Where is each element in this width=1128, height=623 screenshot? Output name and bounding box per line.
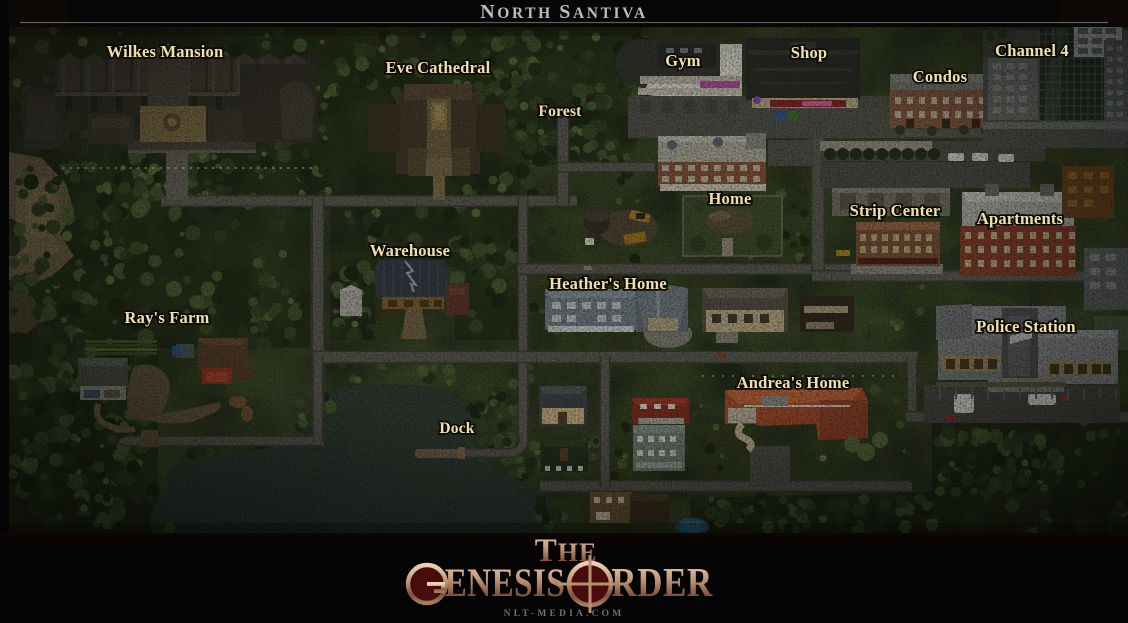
svg-text:Wilkes Mansion: Wilkes Mansion — [107, 42, 224, 61]
svg-text:Gym: Gym — [665, 51, 700, 70]
svg-text:Ray's Farm: Ray's Farm — [125, 308, 210, 327]
svg-text:Home: Home — [709, 189, 752, 208]
svg-text:Apartments: Apartments — [977, 209, 1064, 228]
svg-text:NLT-MEDIA.COM: NLT-MEDIA.COM — [504, 609, 625, 619]
svg-text:Police Station: Police Station — [976, 317, 1076, 336]
svg-text:NORTH SANTIVA: NORTH SANTIVA — [480, 1, 648, 23]
svg-text:Warehouse: Warehouse — [370, 241, 450, 260]
svg-text:RDER: RDER — [611, 560, 713, 605]
svg-text:ENESIS: ENESIS — [445, 560, 566, 605]
svg-text:Channel 4: Channel 4 — [995, 41, 1069, 60]
svg-text:Forest: Forest — [538, 103, 582, 120]
svg-text:Heather's Home: Heather's Home — [549, 274, 667, 293]
svg-text:Eve Cathedral: Eve Cathedral — [386, 58, 491, 77]
svg-text:Condos: Condos — [913, 67, 968, 86]
svg-text:Dock: Dock — [439, 420, 474, 437]
svg-text:Strip Center: Strip Center — [850, 201, 941, 220]
svg-text:Andrea's Home: Andrea's Home — [737, 373, 850, 392]
svg-text:Shop: Shop — [791, 43, 828, 62]
